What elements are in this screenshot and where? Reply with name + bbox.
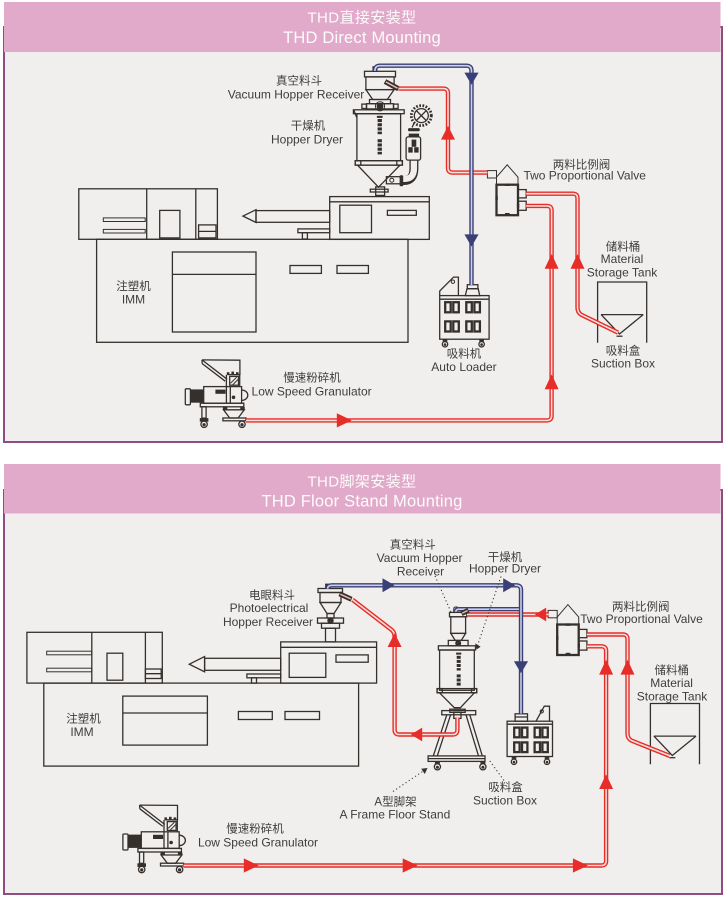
svg-text:慢速粉碎机: 慢速粉碎机 bbox=[283, 371, 341, 385]
svg-text:吸料盒: 吸料盒 bbox=[606, 344, 641, 358]
svg-text:Suction Box: Suction Box bbox=[473, 794, 537, 808]
svg-text:Storage Tank: Storage Tank bbox=[637, 690, 708, 704]
svg-text:Material: Material bbox=[601, 252, 644, 266]
svg-text:慢速粉碎机: 慢速粉碎机 bbox=[226, 822, 284, 836]
svg-text:Vacuum Hopper Receiver: Vacuum Hopper Receiver bbox=[228, 88, 365, 102]
svg-text:THD脚架安装型: THD脚架安装型 bbox=[307, 474, 416, 491]
svg-text:吸料机: 吸料机 bbox=[447, 347, 482, 361]
svg-text:真空料斗: 真空料斗 bbox=[276, 74, 322, 88]
svg-text:Two Proportional Valve: Two Proportional Valve bbox=[523, 169, 646, 183]
svg-text:Two Proportional Valve: Two Proportional Valve bbox=[580, 612, 703, 626]
svg-text:电眼料斗: 电眼料斗 bbox=[249, 588, 295, 602]
svg-text:Receiver: Receiver bbox=[397, 565, 444, 579]
svg-text:A型脚架: A型脚架 bbox=[374, 795, 416, 809]
svg-text:THD Direct Mounting: THD Direct Mounting bbox=[283, 29, 441, 47]
svg-text:Hopper Receiver: Hopper Receiver bbox=[223, 615, 313, 629]
svg-text:Hopper Dryer: Hopper Dryer bbox=[469, 562, 541, 576]
svg-text:储料桶: 储料桶 bbox=[655, 663, 690, 677]
svg-text:A Frame Floor Stand: A Frame Floor Stand bbox=[340, 808, 451, 822]
svg-text:IMM: IMM bbox=[70, 725, 93, 739]
svg-text:Storage Tank: Storage Tank bbox=[587, 266, 658, 280]
svg-text:真空料斗: 真空料斗 bbox=[390, 538, 436, 552]
svg-text:Low Speed Granulator: Low Speed Granulator bbox=[198, 836, 318, 850]
svg-text:THD直接安装型: THD直接安装型 bbox=[307, 10, 416, 27]
svg-text:注塑机: 注塑机 bbox=[116, 279, 151, 293]
svg-text:IMM: IMM bbox=[122, 293, 145, 307]
svg-text:吸料盒: 吸料盒 bbox=[488, 780, 523, 794]
svg-text:Material: Material bbox=[650, 676, 693, 690]
svg-text:注塑机: 注塑机 bbox=[66, 712, 101, 726]
svg-text:Vacuum Hopper: Vacuum Hopper bbox=[377, 551, 463, 565]
svg-text:Low Speed Granulator: Low Speed Granulator bbox=[252, 385, 372, 399]
svg-text:干燥机: 干燥机 bbox=[291, 119, 326, 133]
svg-text:Auto Loader: Auto Loader bbox=[431, 360, 496, 374]
svg-text:Hopper Dryer: Hopper Dryer bbox=[271, 133, 343, 147]
svg-text:THD Floor Stand Mounting: THD Floor Stand Mounting bbox=[261, 493, 462, 511]
svg-text:Suction Box: Suction Box bbox=[591, 357, 655, 371]
svg-text:Photoelectrical: Photoelectrical bbox=[230, 601, 309, 615]
